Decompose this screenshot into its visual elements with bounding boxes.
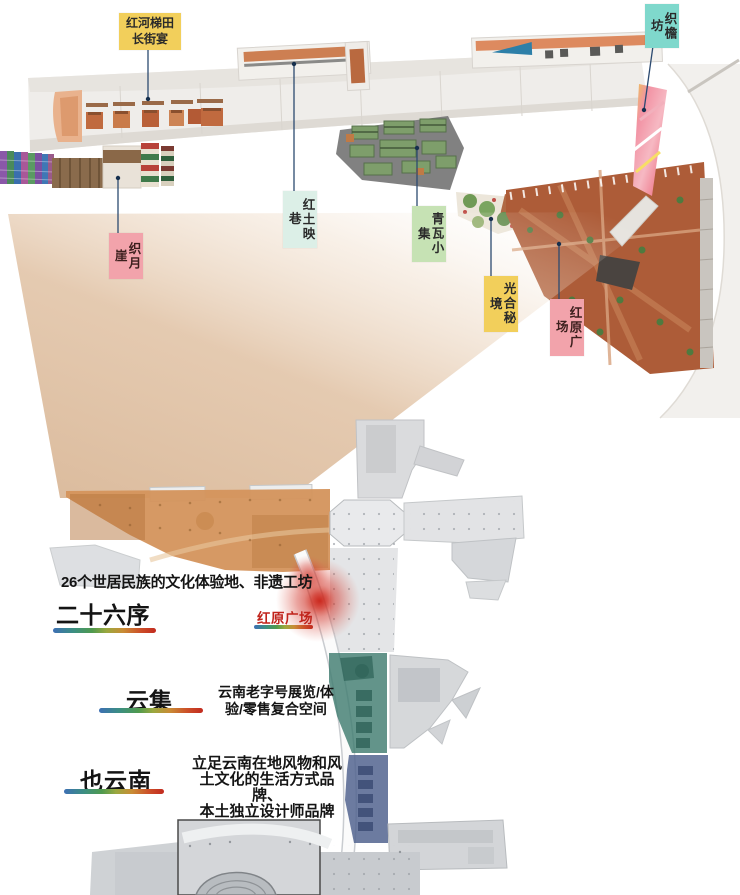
- plaza-rainbow-bar: [254, 625, 313, 629]
- plaza-red-label: 红原广场: [257, 607, 313, 627]
- map-label-changjieyan-line1: 红河梯田: [126, 16, 174, 30]
- map-label-hongyuanguangchang: 红原广场: [550, 299, 584, 356]
- arcade-top-right: [472, 31, 663, 68]
- map-label-hongtuyingxiang: 红土映巷: [283, 191, 317, 248]
- map-label-qingwaxiaoji: 青瓦小集: [412, 206, 446, 262]
- yeyunnan-rainbow-bar: [64, 789, 164, 794]
- site-plan-infographic: 红河梯田 长街宴 织檐坊 织月崖 红土映巷 青瓦小集 光合秘境 红原广场 26个…: [0, 0, 740, 895]
- ershiliuxu-title: 二十六序: [56, 596, 150, 630]
- ershiliuxu-description: 26个世居民族的文化体验地、非遗工坊: [61, 571, 361, 592]
- yeyunnan-description-line3: 本土独立设计师品牌: [188, 804, 346, 820]
- yunji-rainbow-bar: [99, 708, 203, 713]
- yeyunnan-description: 立足云南在地风物和风 土文化的生活方式品牌、 本土独立设计师品牌: [188, 756, 346, 820]
- yeyunnan-description-line1: 立足云南在地风物和风: [188, 756, 346, 772]
- zone-blue: [345, 755, 388, 843]
- yunji-description-line1: 云南老字号展览/体: [211, 684, 341, 701]
- yunji-description: 云南老字号展览/体 验/零售复合空间: [211, 684, 341, 717]
- yeyunnan-description-line2: 土文化的生活方式品牌、: [188, 772, 346, 804]
- map-label-changjieyan: 红河梯田 长街宴: [119, 13, 181, 50]
- map-label-changjieyan-line2: 长街宴: [132, 32, 168, 46]
- map-label-zhiyanfang: 织檐坊: [645, 4, 679, 48]
- site-artwork: [0, 0, 740, 895]
- yunji-description-line2: 验/零售复合空间: [211, 701, 341, 718]
- map-label-guanghemijing: 光合秘境: [484, 276, 518, 332]
- ershiliuxu-rainbow-bar: [53, 628, 156, 633]
- map-label-zhiyueya: 织月崖: [109, 233, 143, 279]
